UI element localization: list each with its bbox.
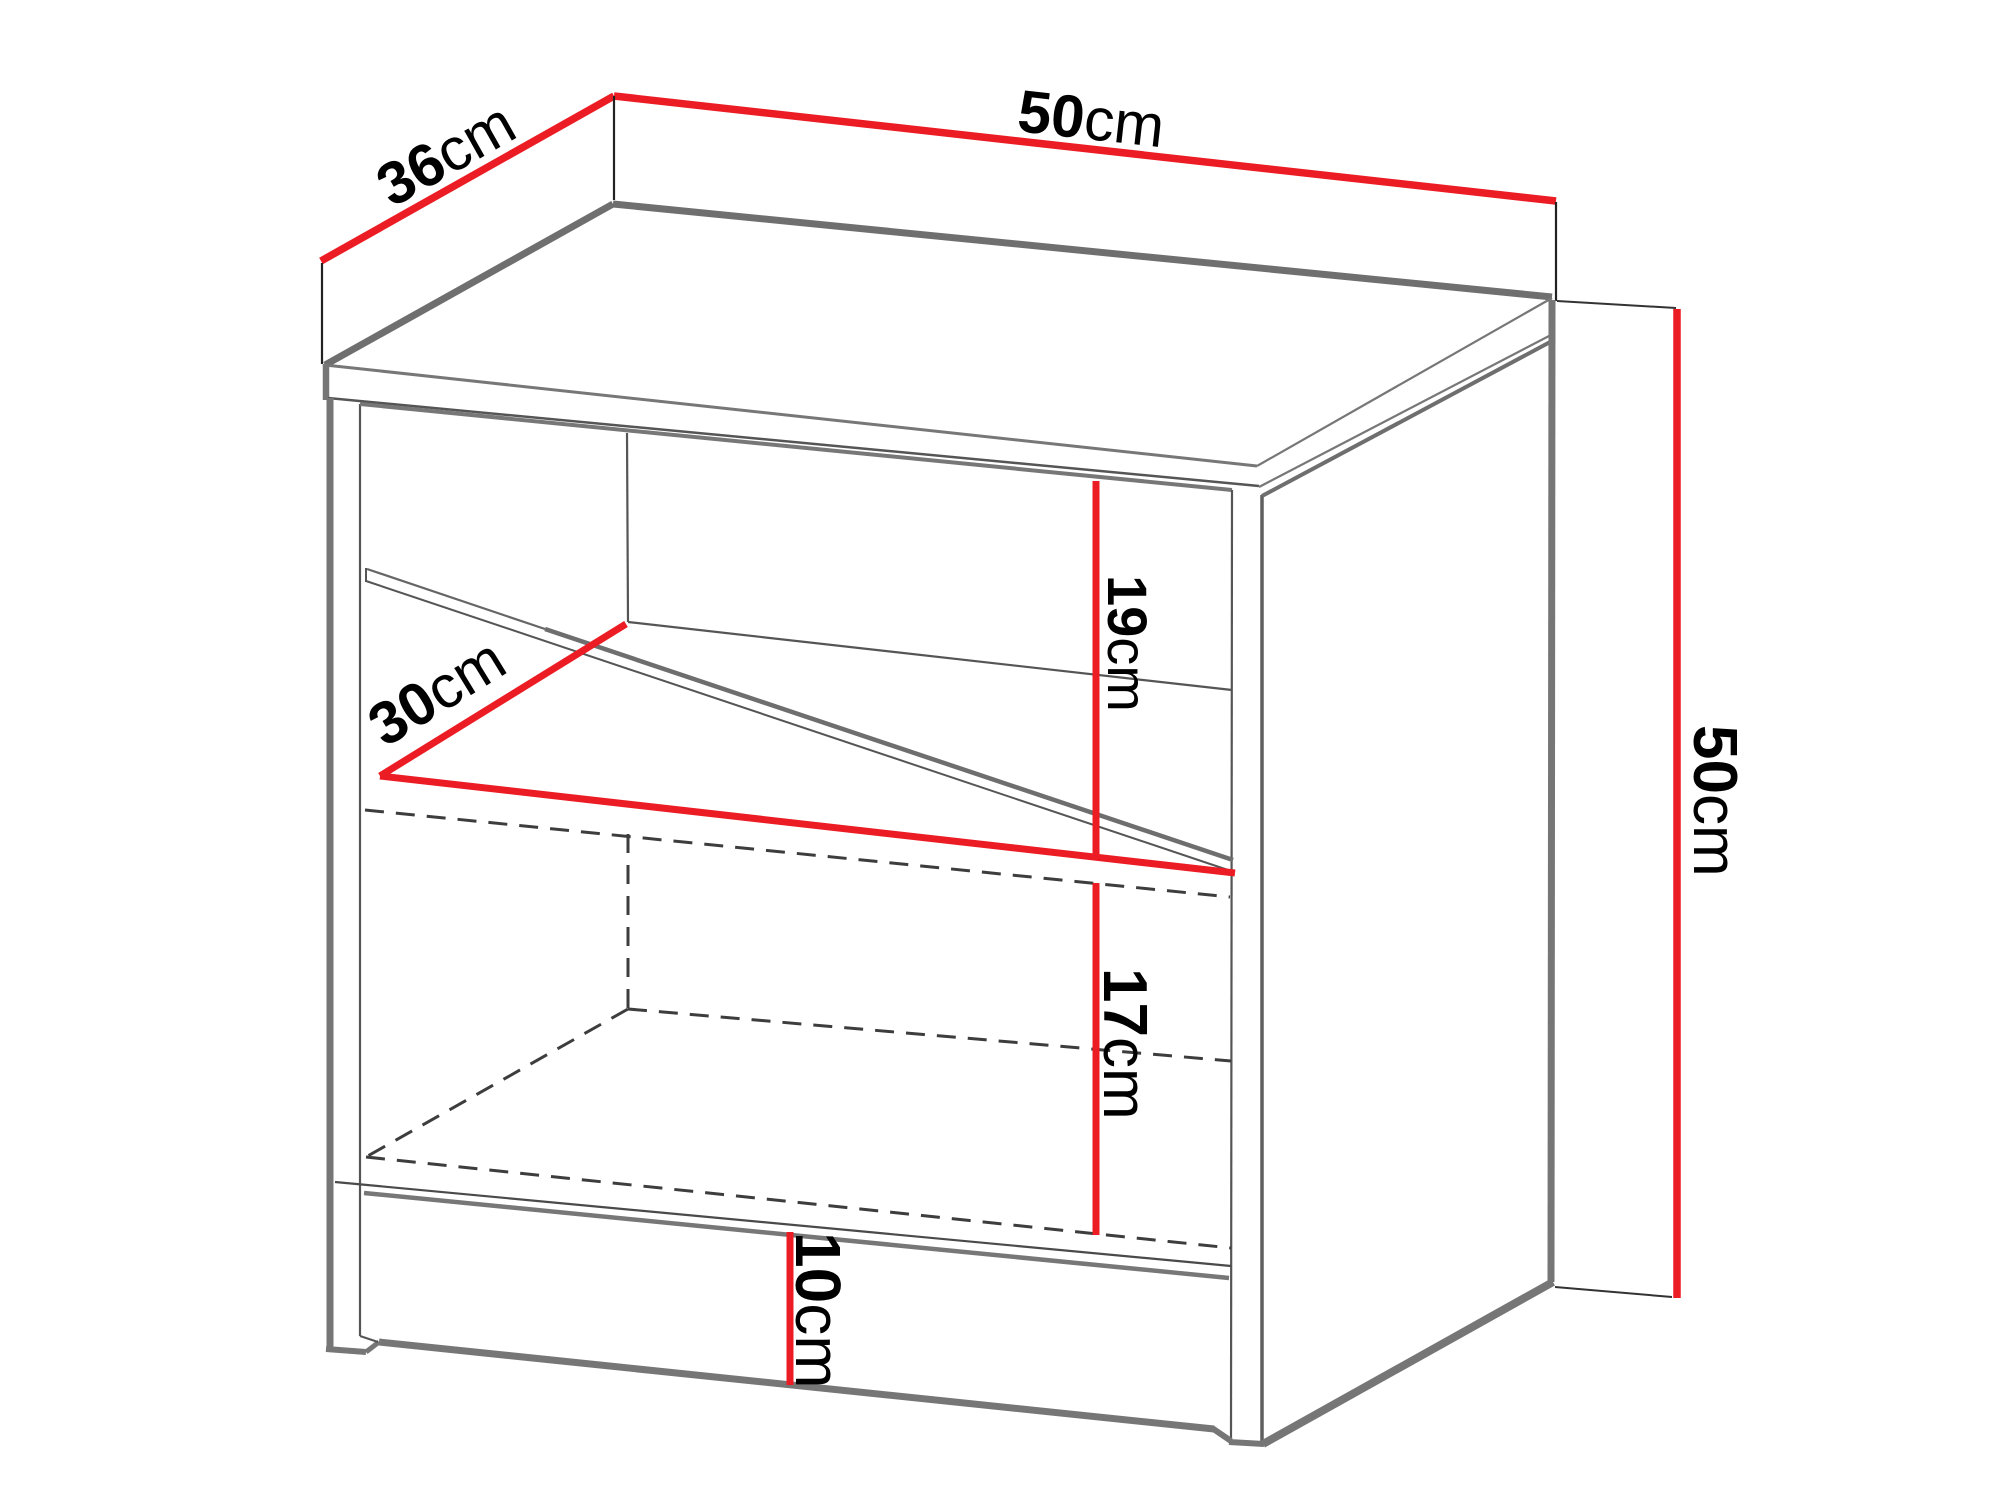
svg-text:19cm: 19cm (1096, 575, 1159, 712)
svg-text:50cm: 50cm (1680, 725, 1749, 877)
svg-text:17cm: 17cm (1090, 968, 1159, 1120)
svg-text:10cm: 10cm (782, 1232, 854, 1389)
